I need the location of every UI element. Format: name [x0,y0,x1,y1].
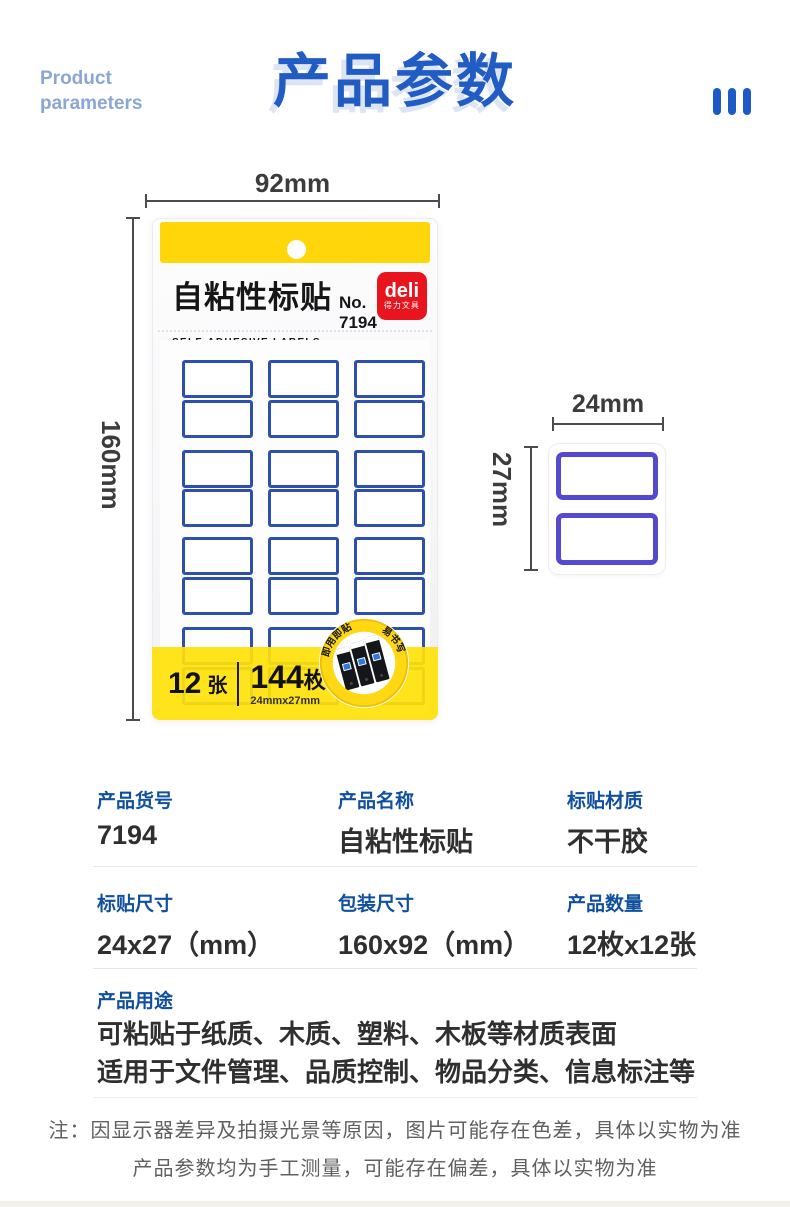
hang-hole [287,240,306,259]
param-label: 标贴材质 [567,786,643,813]
sheet-label-cell [182,400,253,438]
package-header-band [160,222,430,263]
dim-label-width: 24mm [552,390,664,419]
sheet-label-cell [268,450,339,488]
param-label: 产品数量 [567,889,643,916]
dim-label-height: 27mm [486,452,517,527]
usage-line1: 可粘贴于纸质、木质、塑料、木板等材质表面 [97,1014,617,1051]
sheets-unit: 张 [207,669,227,698]
sheet-label-cell [182,489,253,527]
sheet-label-cell [182,450,253,488]
dim-package-height: 160mm [95,420,126,510]
sheet-row [182,489,425,527]
sheet-label-cell [354,450,425,488]
sheet-label-cell [182,360,253,398]
dim-line-width [145,200,440,202]
sheet-label-cell [354,489,425,527]
param-value: 12枚x12张 [567,923,696,962]
bag-seal-perforation [158,330,432,332]
sheet-label-cell [354,577,425,615]
param-value: 24x27（mm） [97,923,274,962]
divider [93,968,697,969]
product-parameters-page: Product parameters 产品参数 92mm 160mm 自粘性标贴… [0,0,790,1207]
param-label: 产品名称 [338,786,414,813]
note-line1: 注：因显示器差异及拍摄光景等原因，图片可能存在色差，具体以实物为准 [0,1114,790,1143]
param-value: 160x92（mm） [338,923,530,962]
dim-line-label-height [530,446,532,571]
triple-bars-icon [713,88,751,115]
sheet-label-cell [354,400,425,438]
page-title: 产品参数 [0,34,790,118]
note-line2: 产品参数均为手工测量，可能存在偏差，具体以实物为准 [0,1152,790,1181]
sheets-count: 12 [168,667,201,701]
package-title-row: 自粘性标贴 No. 7194 SELF-ADHESIVE LABELS deli… [172,272,426,348]
section-divider-strip [0,1201,790,1207]
package-title-cn: 自粘性标贴 [172,272,332,317]
sheet-label-cell [268,400,339,438]
sheet-row [182,400,425,438]
divider [93,866,697,867]
param-value: 自粘性标贴 [338,820,473,859]
labels-count: 144 [250,659,303,695]
divider [93,1097,697,1098]
dim-line-label-width [552,423,664,425]
sheet-label-cell [268,360,339,398]
label-sticker-image [549,444,665,574]
sheet-label-cell [182,577,253,615]
mini-label-cell [556,452,658,500]
param-label: 产品用途 [97,986,173,1013]
deli-logo: deli 得力文具 [377,272,427,320]
sheet-label-cell [182,537,253,575]
deli-logo-cn: 得力文具 [384,301,420,311]
mini-label-cell [556,513,658,565]
sheet-label-cell [354,537,425,575]
usage-line2: 适用于文件管理、品质控制、物品分类、信息标注等 [97,1052,695,1089]
param-label: 包装尺寸 [338,889,414,916]
param-label: 标贴尺寸 [97,889,173,916]
param-label: 产品货号 [97,786,173,813]
sheet-row [182,360,425,398]
product-package-image: 自粘性标贴 No. 7194 SELF-ADHESIVE LABELS deli… [152,218,438,720]
param-value: 不干胶 [567,820,648,859]
sheet-label-cell [268,489,339,527]
sheet-row [182,577,425,615]
usage-badge-icon: 即用即贴 易书写 [318,617,410,709]
sheet-row [182,450,425,488]
dim-package-width: 92mm [145,168,440,199]
package-model-no: No. 7194 [339,293,377,333]
param-value: 7194 [97,820,157,851]
label-size-small: 24mmx27mm [250,696,325,707]
sheet-label-cell [354,360,425,398]
sheet-label-cell [268,577,339,615]
sheet-label-cell [268,537,339,575]
dim-line-height [132,217,134,721]
sheet-row [182,537,425,575]
deli-logo-text: deli [385,281,419,301]
band-divider [237,662,239,706]
